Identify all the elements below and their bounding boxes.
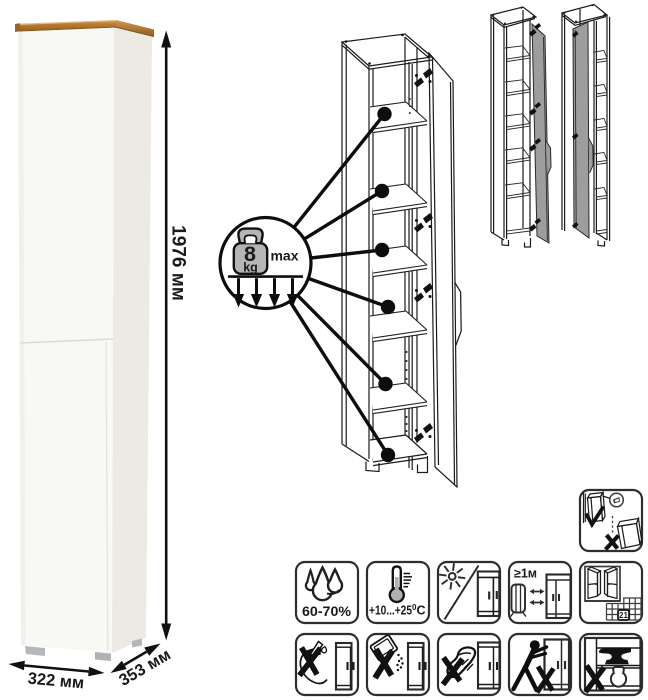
svg-text:≥1м: ≥1м: [514, 567, 537, 581]
svg-text:max: max: [270, 248, 298, 264]
svg-text:1976 мм: 1976 мм: [167, 225, 188, 301]
svg-text:+10...+250С: +10...+250С: [369, 603, 425, 618]
svg-text:21: 21: [619, 611, 628, 620]
svg-text:kg: kg: [243, 261, 258, 275]
svg-text:60-70%: 60-70%: [302, 604, 351, 620]
